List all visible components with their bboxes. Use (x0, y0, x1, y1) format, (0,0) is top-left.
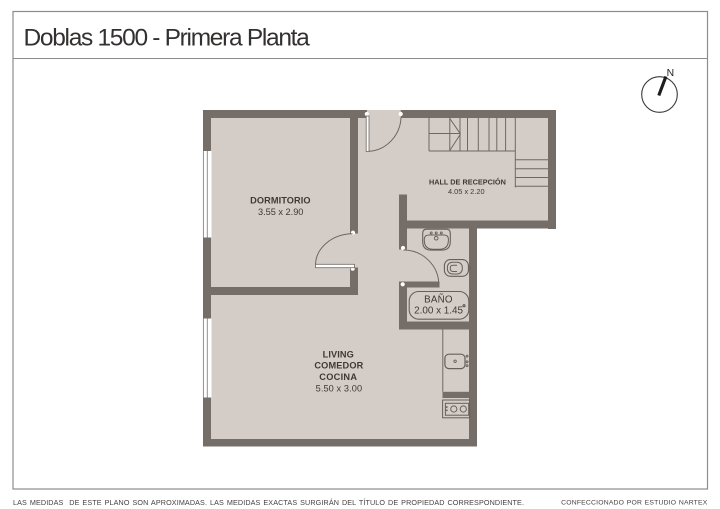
svg-text:3.55 x 2.90: 3.55 x 2.90 (258, 207, 303, 217)
svg-text:N: N (667, 68, 675, 79)
svg-text:COMEDOR: COMEDOR (314, 361, 363, 371)
svg-text:LIVING: LIVING (323, 350, 354, 360)
svg-text:2.00 x 1.45: 2.00 x 1.45 (414, 306, 463, 317)
svg-text:COCINA: COCINA (319, 372, 357, 382)
svg-text:Doblas 1500 - Primera Planta: Doblas 1500 - Primera Planta (24, 25, 311, 52)
svg-text:BAÑO: BAÑO (424, 295, 453, 306)
svg-text:LAS MEDIDAS DE ESTE PLANO SON: LAS MEDIDAS DE ESTE PLANO SON APROXIMADA… (13, 498, 524, 507)
svg-text:HALL DE RECEPCIÓN: HALL DE RECEPCIÓN (429, 178, 506, 187)
svg-text:5.50 x 3.00: 5.50 x 3.00 (316, 383, 363, 393)
svg-text:CONFECCIONADO POR ESTUDIO NART: CONFECCIONADO POR ESTUDIO NARTEX (561, 500, 708, 507)
svg-text:4.05 x 2.20: 4.05 x 2.20 (448, 187, 485, 196)
svg-text:DORMITORIO: DORMITORIO (250, 195, 311, 205)
